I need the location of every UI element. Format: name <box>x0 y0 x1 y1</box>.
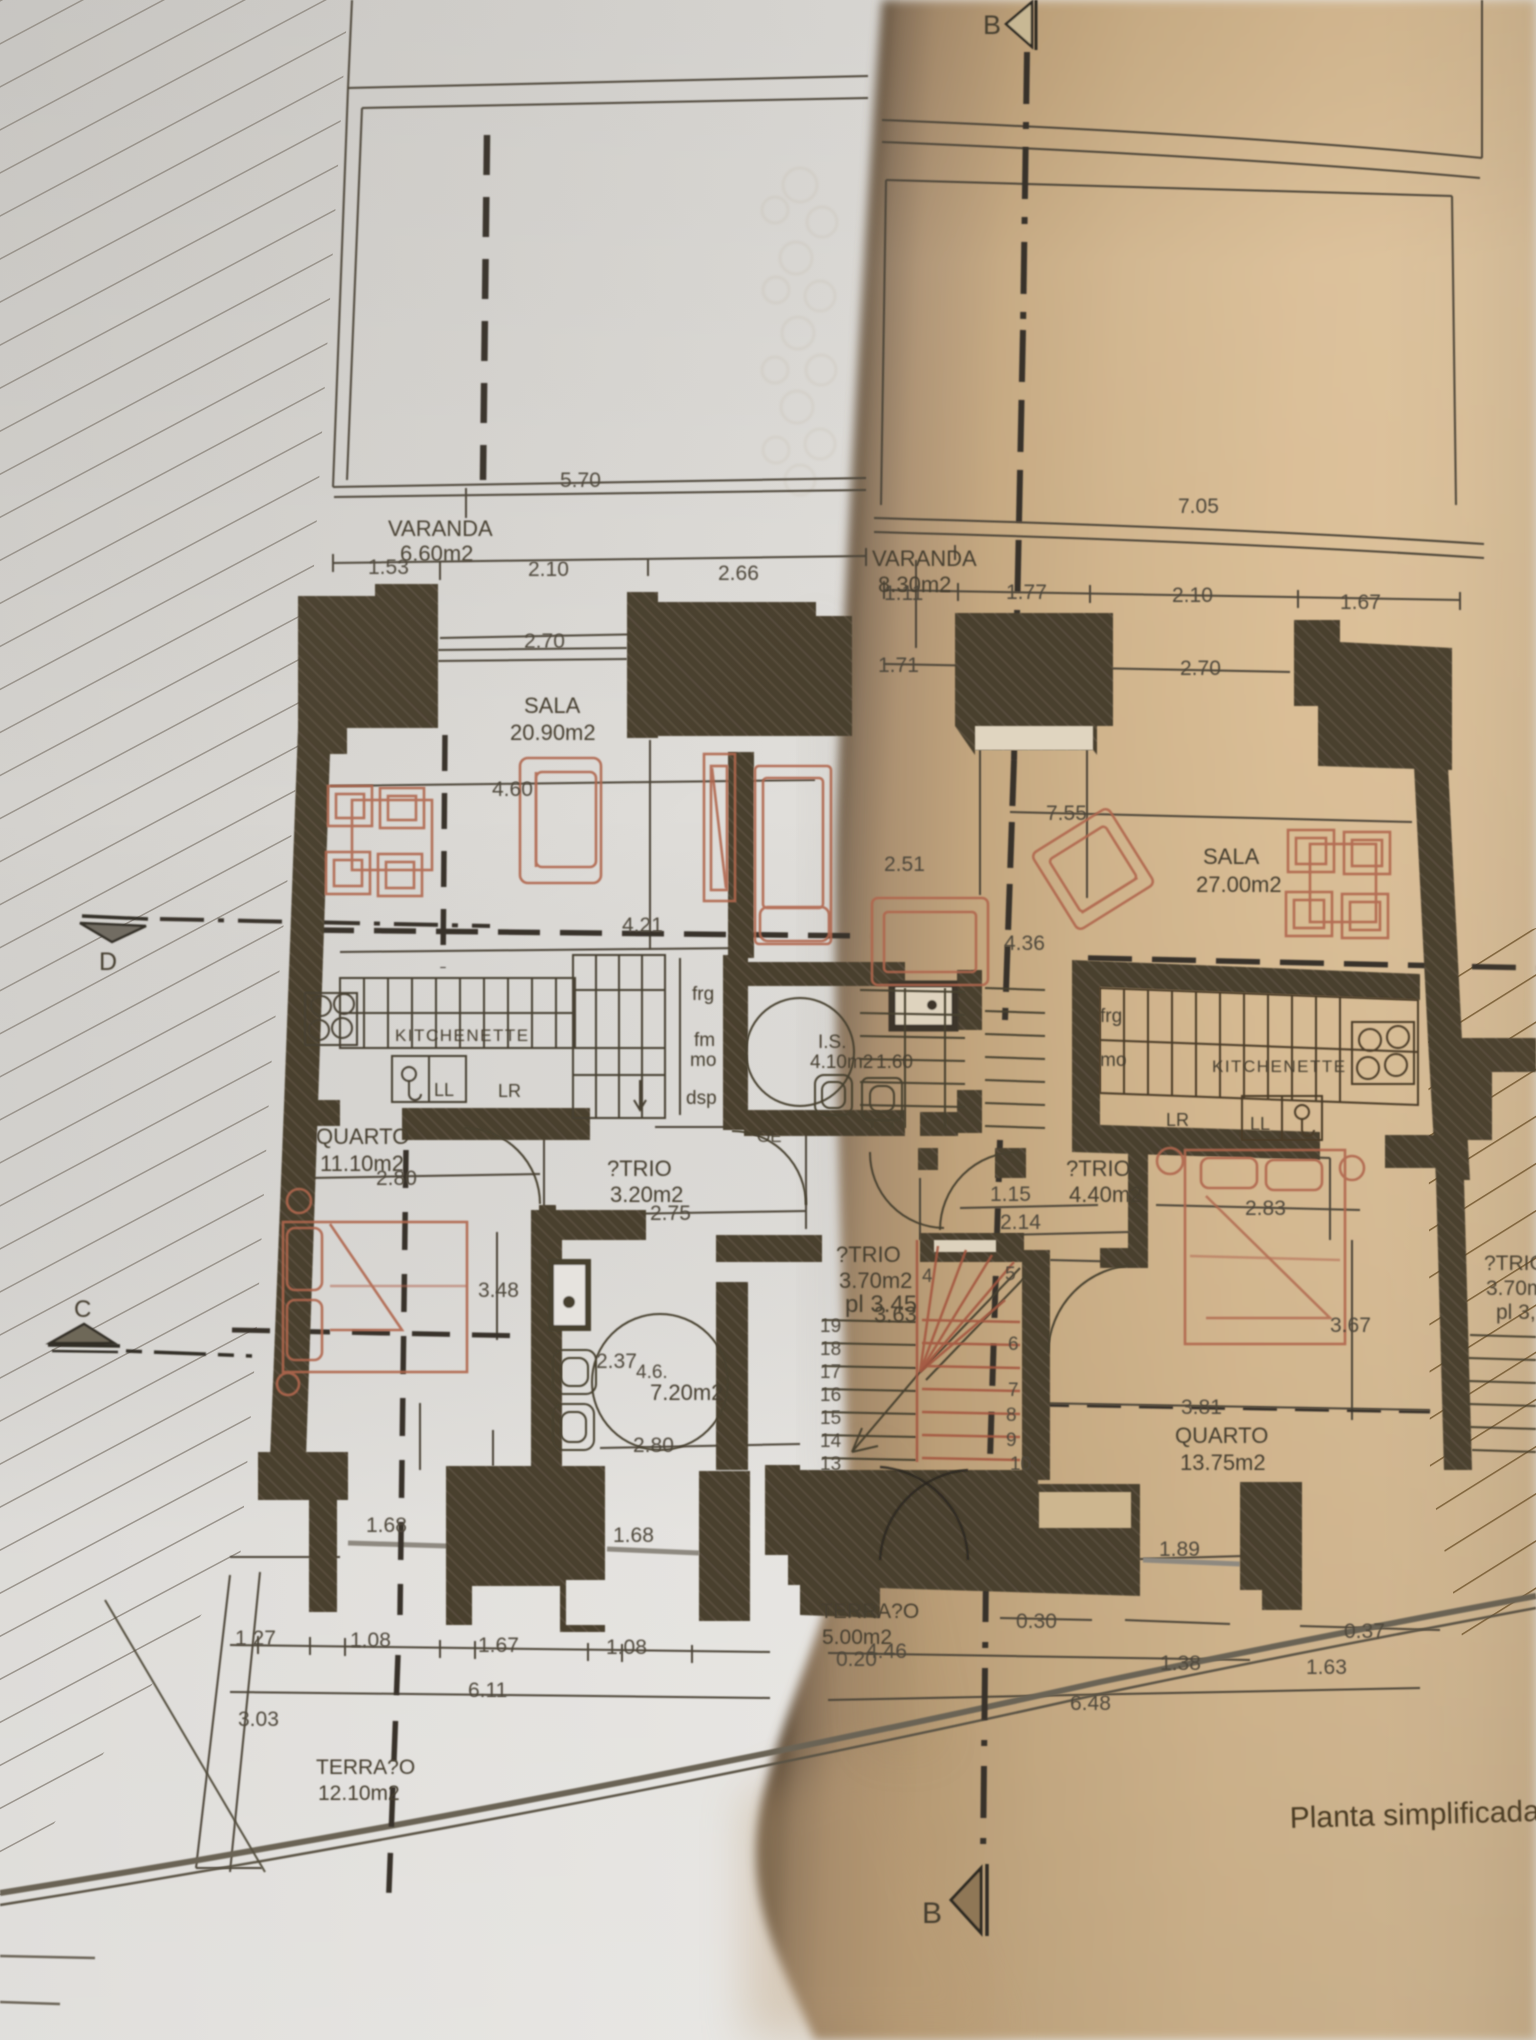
svg-text:TERRA?O: TERRA?O <box>820 1600 919 1623</box>
svg-text:1.63: 1.63 <box>1306 1656 1347 1679</box>
svg-text:2.80: 2.80 <box>633 1434 674 1457</box>
svg-text:QUARTO: QUARTO <box>1175 1423 1268 1448</box>
svg-text:9: 9 <box>1006 1430 1017 1451</box>
svg-text:KITCHENETTE: KITCHENETTE <box>1212 1057 1347 1076</box>
svg-text:B: B <box>922 1897 942 1930</box>
svg-text:1.38: 1.38 <box>1160 1652 1201 1675</box>
svg-text:frg: frg <box>1100 1006 1122 1027</box>
svg-text:3.81: 3.81 <box>1181 1396 1222 1419</box>
svg-text:TERRA?O: TERRA?O <box>316 1756 415 1779</box>
svg-text:27.00m2: 27.00m2 <box>1196 872 1282 897</box>
svg-text:LL: LL <box>1250 1114 1270 1134</box>
svg-text:1.08: 1.08 <box>350 1629 391 1652</box>
svg-text:1.68: 1.68 <box>366 1514 407 1537</box>
svg-text:6.11: 6.11 <box>468 1679 507 1702</box>
svg-text:0.30: 0.30 <box>1016 1610 1057 1633</box>
svg-text:12.10m2: 12.10m2 <box>318 1782 400 1805</box>
svg-text:3.03: 3.03 <box>238 1708 279 1731</box>
svg-text:2.10: 2.10 <box>1172 584 1213 607</box>
svg-text:8: 8 <box>1006 1405 1017 1426</box>
svg-text:2.70: 2.70 <box>1180 657 1221 680</box>
svg-text:10: 10 <box>1010 1454 1031 1475</box>
svg-text:mo: mo <box>1100 1050 1126 1071</box>
svg-text:7.05: 7.05 <box>1178 495 1219 518</box>
svg-text:4.46: 4.46 <box>866 1640 907 1663</box>
svg-text:3.67: 3.67 <box>1330 1314 1371 1337</box>
svg-text:14: 14 <box>820 1431 842 1452</box>
svg-text:2.83: 2.83 <box>1245 1197 1286 1220</box>
svg-text:LR: LR <box>1166 1110 1189 1130</box>
svg-text:0.37: 0.37 <box>1344 1620 1385 1643</box>
svg-text:1.68: 1.68 <box>613 1524 654 1547</box>
svg-text:13: 13 <box>820 1454 841 1475</box>
svg-text:SALA: SALA <box>1203 844 1260 869</box>
svg-text:13.75m2: 13.75m2 <box>1180 1450 1266 1475</box>
svg-text:6.48: 6.48 <box>1070 1692 1111 1715</box>
svg-text:1.89: 1.89 <box>1159 1538 1200 1561</box>
svg-text:1.67: 1.67 <box>1340 591 1381 614</box>
svg-text:15: 15 <box>820 1408 841 1429</box>
svg-text:1.67: 1.67 <box>478 1634 519 1657</box>
svg-text:1.08: 1.08 <box>606 1636 647 1659</box>
svg-text:1 27: 1 27 <box>235 1627 276 1650</box>
